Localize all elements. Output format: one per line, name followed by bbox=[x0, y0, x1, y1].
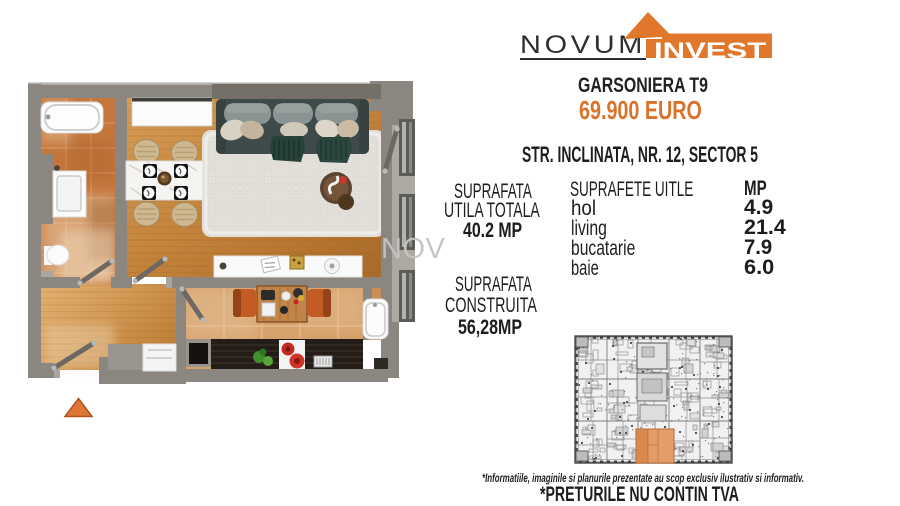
svg-text:NOV: NOV bbox=[381, 233, 446, 265]
